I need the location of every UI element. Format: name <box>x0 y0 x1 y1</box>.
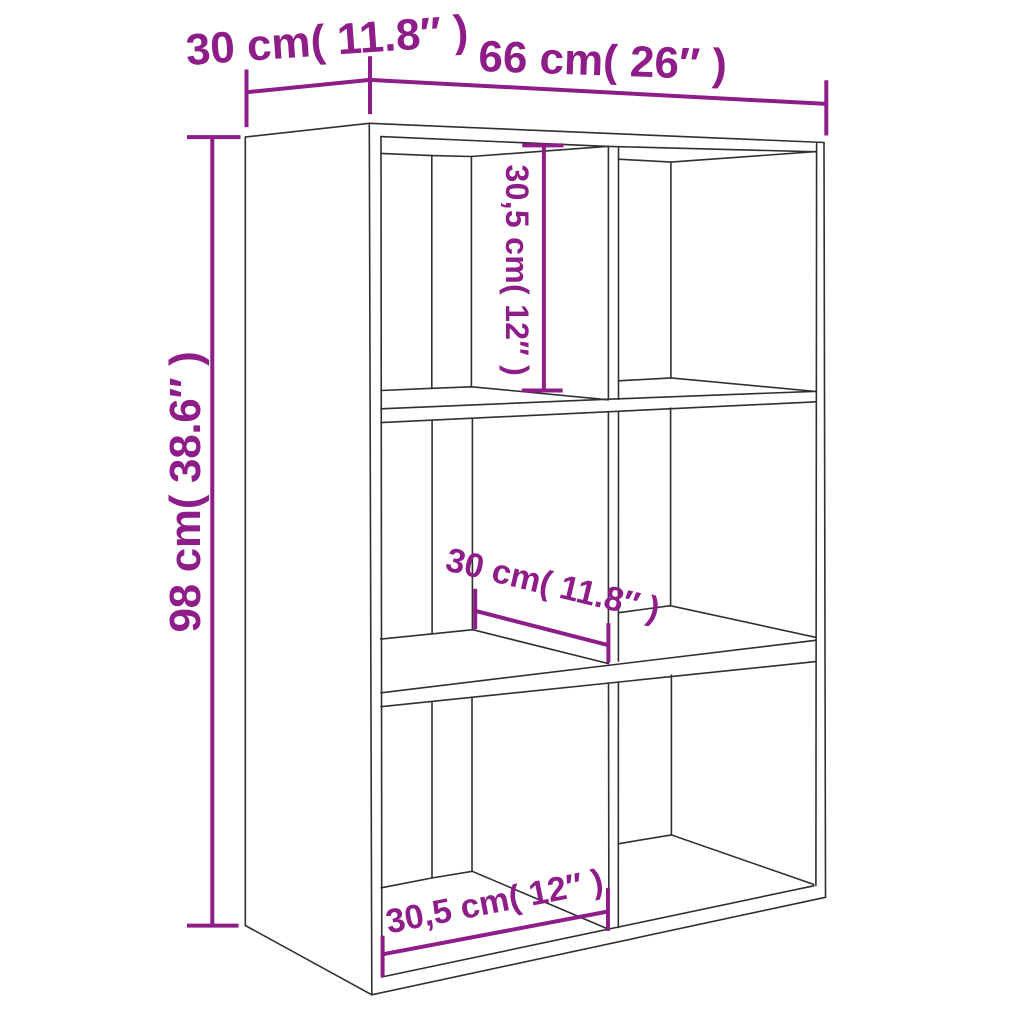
svg-text:98 cm( 38.6″ ): 98 cm( 38.6″ ) <box>161 351 210 632</box>
svg-text:66 cm( 26″ ): 66 cm( 26″ ) <box>478 32 728 90</box>
svg-text:30,5 cm( 12″ ): 30,5 cm( 12″ ) <box>499 165 535 377</box>
